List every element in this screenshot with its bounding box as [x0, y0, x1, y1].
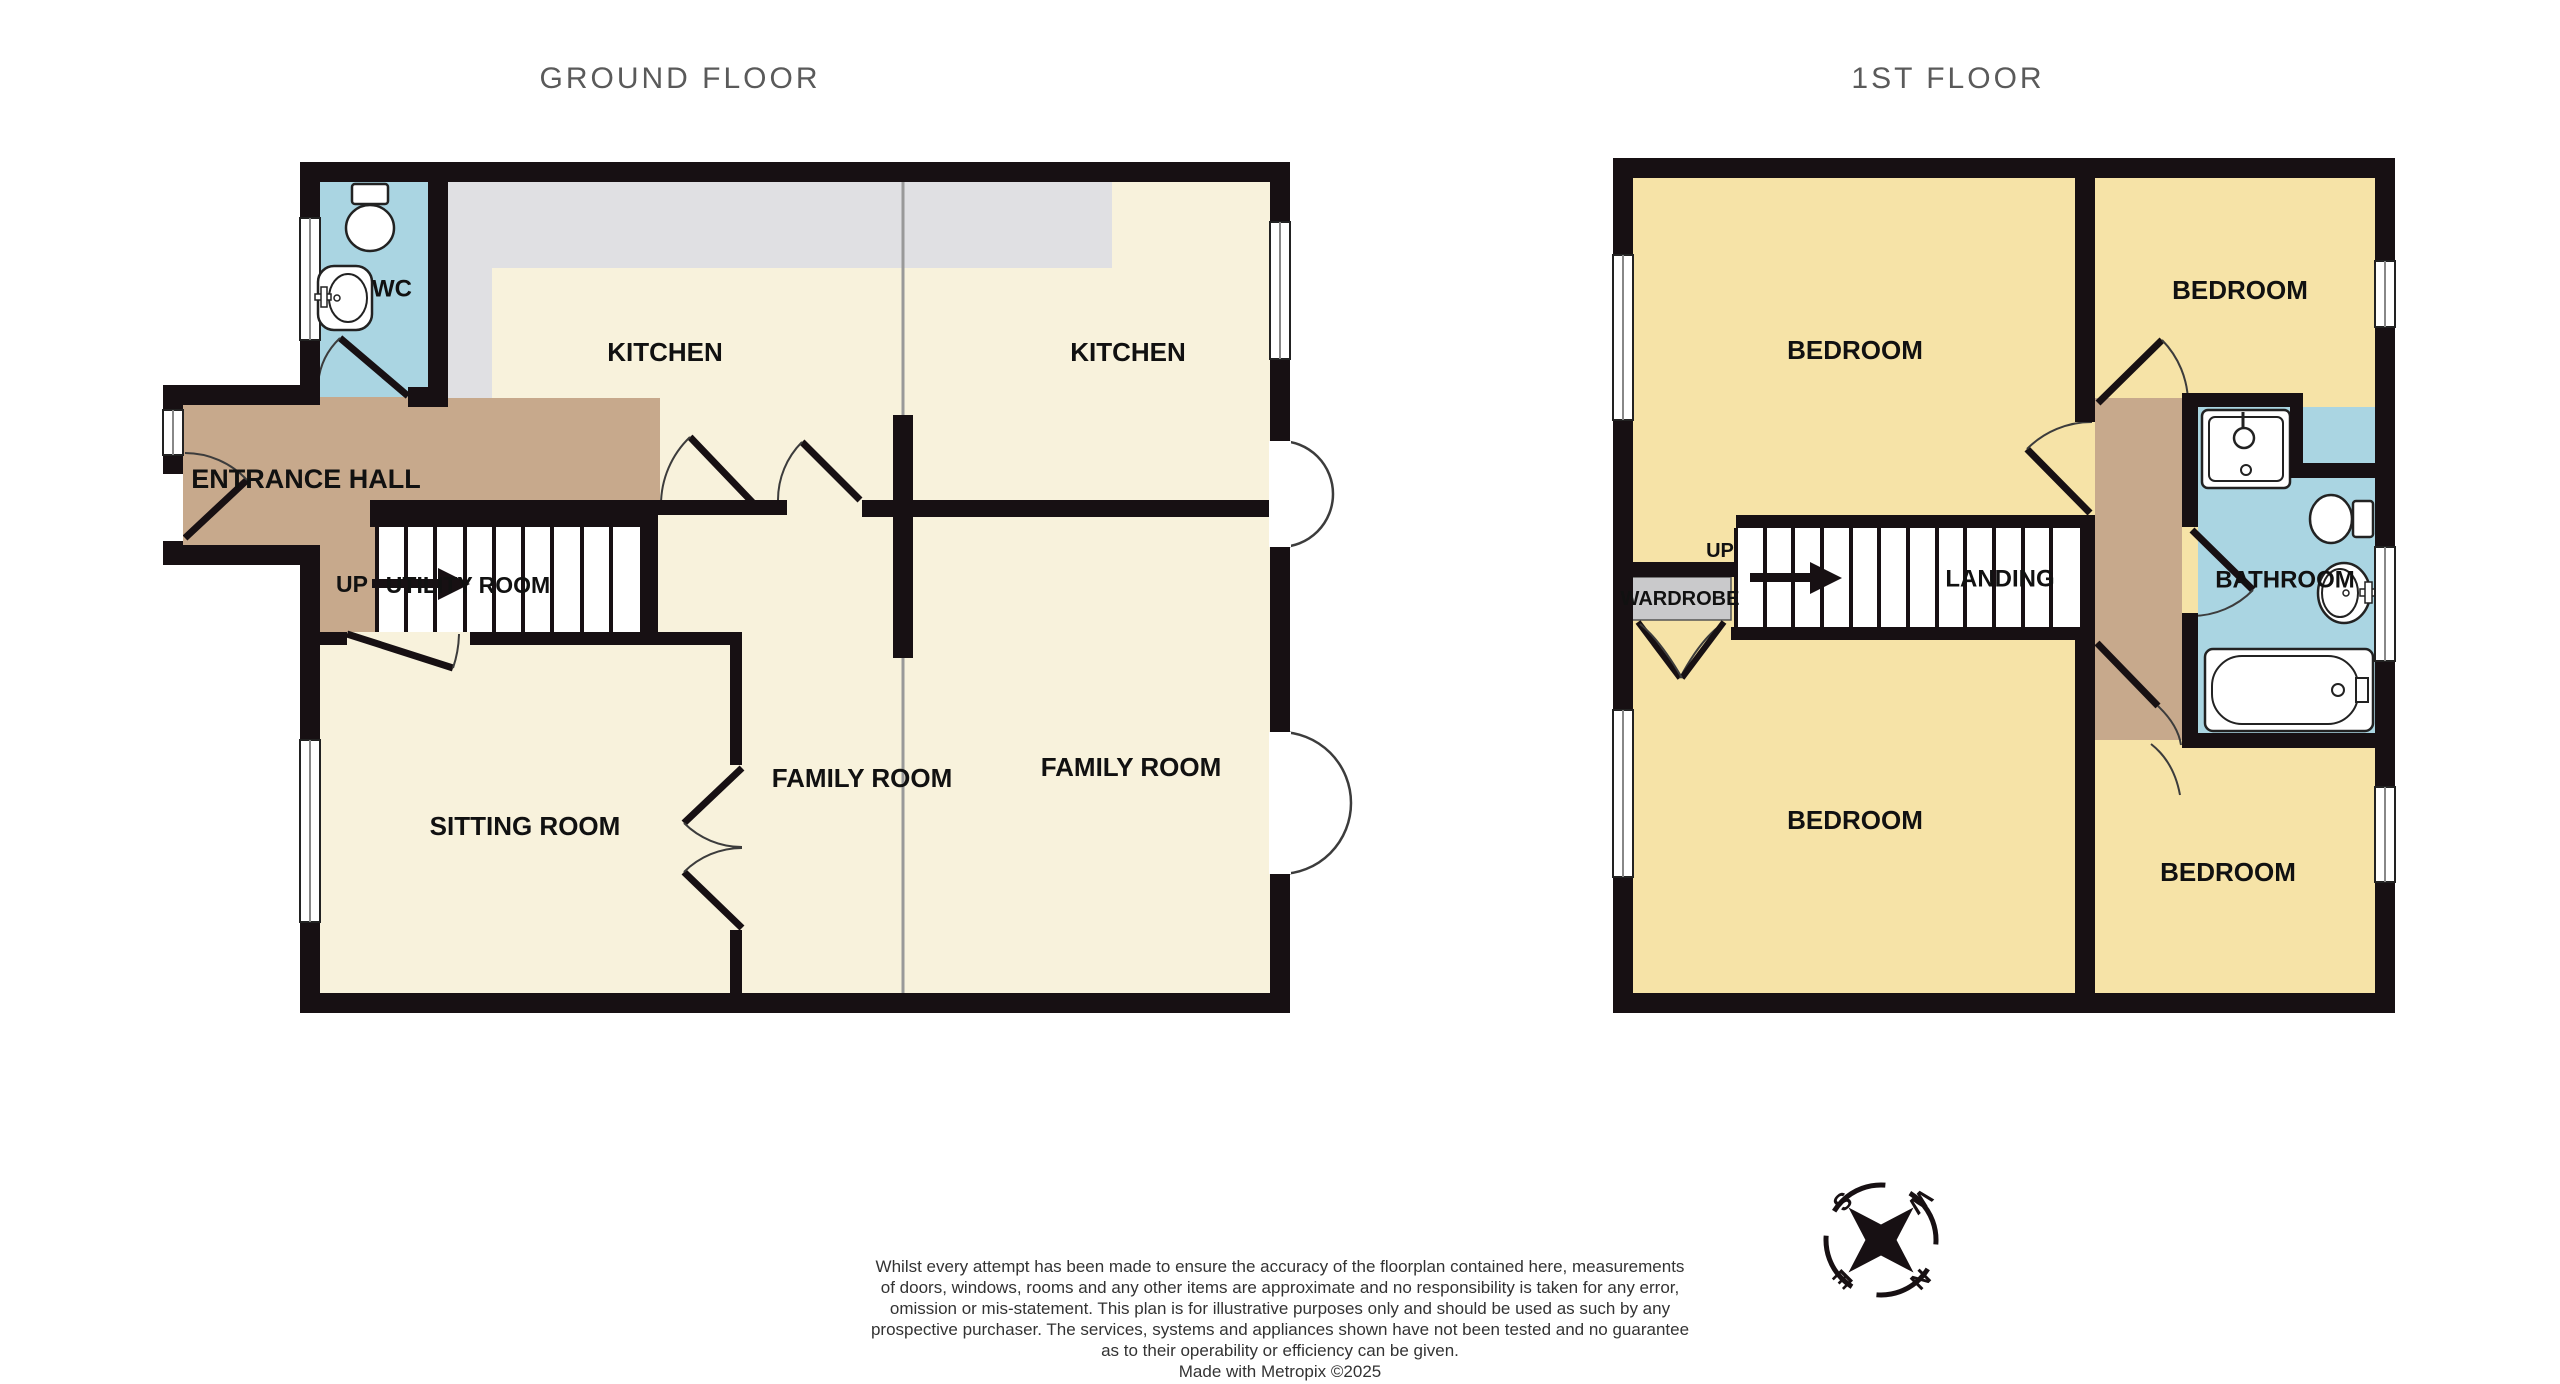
floorplan-canvas: WC ENTRANCE HALL KITCHEN KITCHEN UP UTIL… — [0, 0, 2560, 1384]
room-label-sitting: SITTING ROOM — [430, 811, 621, 841]
toilet-bowl-icon — [346, 205, 394, 251]
room-label-wardrobe: WARDROBE — [1621, 588, 1740, 610]
first-floor-plan: BEDROOM BEDROOM UP LANDING WARDROBE BATH… — [1613, 158, 2395, 1013]
floorplan-page: WC ENTRANCE HALL KITCHEN KITCHEN UP UTIL… — [0, 0, 2560, 1384]
window — [2375, 547, 2395, 661]
bathtub-icon — [2205, 649, 2373, 731]
disclaimer-line-2: of doors, windows, rooms and any other i… — [881, 1278, 1679, 1297]
window — [2375, 261, 2395, 327]
entrance-hall-corridor-fill — [448, 398, 660, 515]
french-door-opening — [1269, 732, 1291, 874]
room-label-entrance-hall: ENTRANCE HALL — [191, 464, 421, 494]
made-with-credit: Made with Metropix ©2025 — [1179, 1362, 1381, 1381]
first-floor-title: 1ST FLOOR — [1851, 62, 2044, 95]
stairs-up-label-first: UP — [1706, 540, 1734, 562]
room-label-bathroom: BATHROOM — [2215, 567, 2355, 594]
disclaimer-line-1: Whilst every attempt has been made to en… — [876, 1257, 1685, 1276]
shower-icon — [2202, 410, 2290, 488]
room-label-kitchen-right: KITCHEN — [1070, 337, 1186, 367]
room-label-bedroom-bottom-left: BEDROOM — [1787, 805, 1923, 835]
room-label-wc: WC — [372, 276, 412, 303]
ground-floor-title: GROUND FLOOR — [539, 62, 820, 95]
window — [1613, 255, 1633, 420]
toilet-cistern-icon — [352, 184, 388, 204]
window — [300, 740, 320, 922]
disclaimer-line-4: prospective purchaser. The services, sys… — [871, 1320, 1689, 1339]
room-label-kitchen-left: KITCHEN — [607, 337, 723, 367]
room-label-family-left: FAMILY ROOM — [772, 763, 953, 793]
disclaimer-line-5: as to their operability or efficiency ca… — [1101, 1341, 1459, 1360]
kitchen-counter-top — [448, 182, 1112, 268]
room-label-bedroom-bottom-right: BEDROOM — [2160, 857, 2296, 887]
kitchen-counter-side — [448, 268, 492, 398]
disclaimer-text: Whilst every attempt has been made to en… — [871, 1257, 1689, 1381]
room-label-bedroom-top-left: BEDROOM — [1787, 335, 1923, 365]
stairs-up-label: UP — [336, 571, 368, 597]
disclaimer-line-3: omission or mis-statement. This plan is … — [890, 1299, 1671, 1318]
room-label-landing: LANDING — [1945, 566, 2054, 593]
window — [2375, 787, 2395, 882]
compass-rose: N E S W — [1788, 1145, 1976, 1333]
room-label-utility: UTILITY ROOM — [386, 572, 550, 598]
window — [1613, 710, 1633, 877]
toilet-icon — [2310, 495, 2373, 543]
front-door-opening — [163, 474, 183, 541]
room-label-family-right: FAMILY ROOM — [1041, 752, 1222, 782]
window — [1270, 222, 1290, 359]
ground-floor-plan: WC ENTRANCE HALL KITCHEN KITCHEN UP UTIL… — [163, 162, 1351, 1013]
room-label-bedroom-top-right: BEDROOM — [2172, 275, 2308, 305]
french-door-opening — [1269, 441, 1291, 547]
window — [163, 410, 183, 455]
